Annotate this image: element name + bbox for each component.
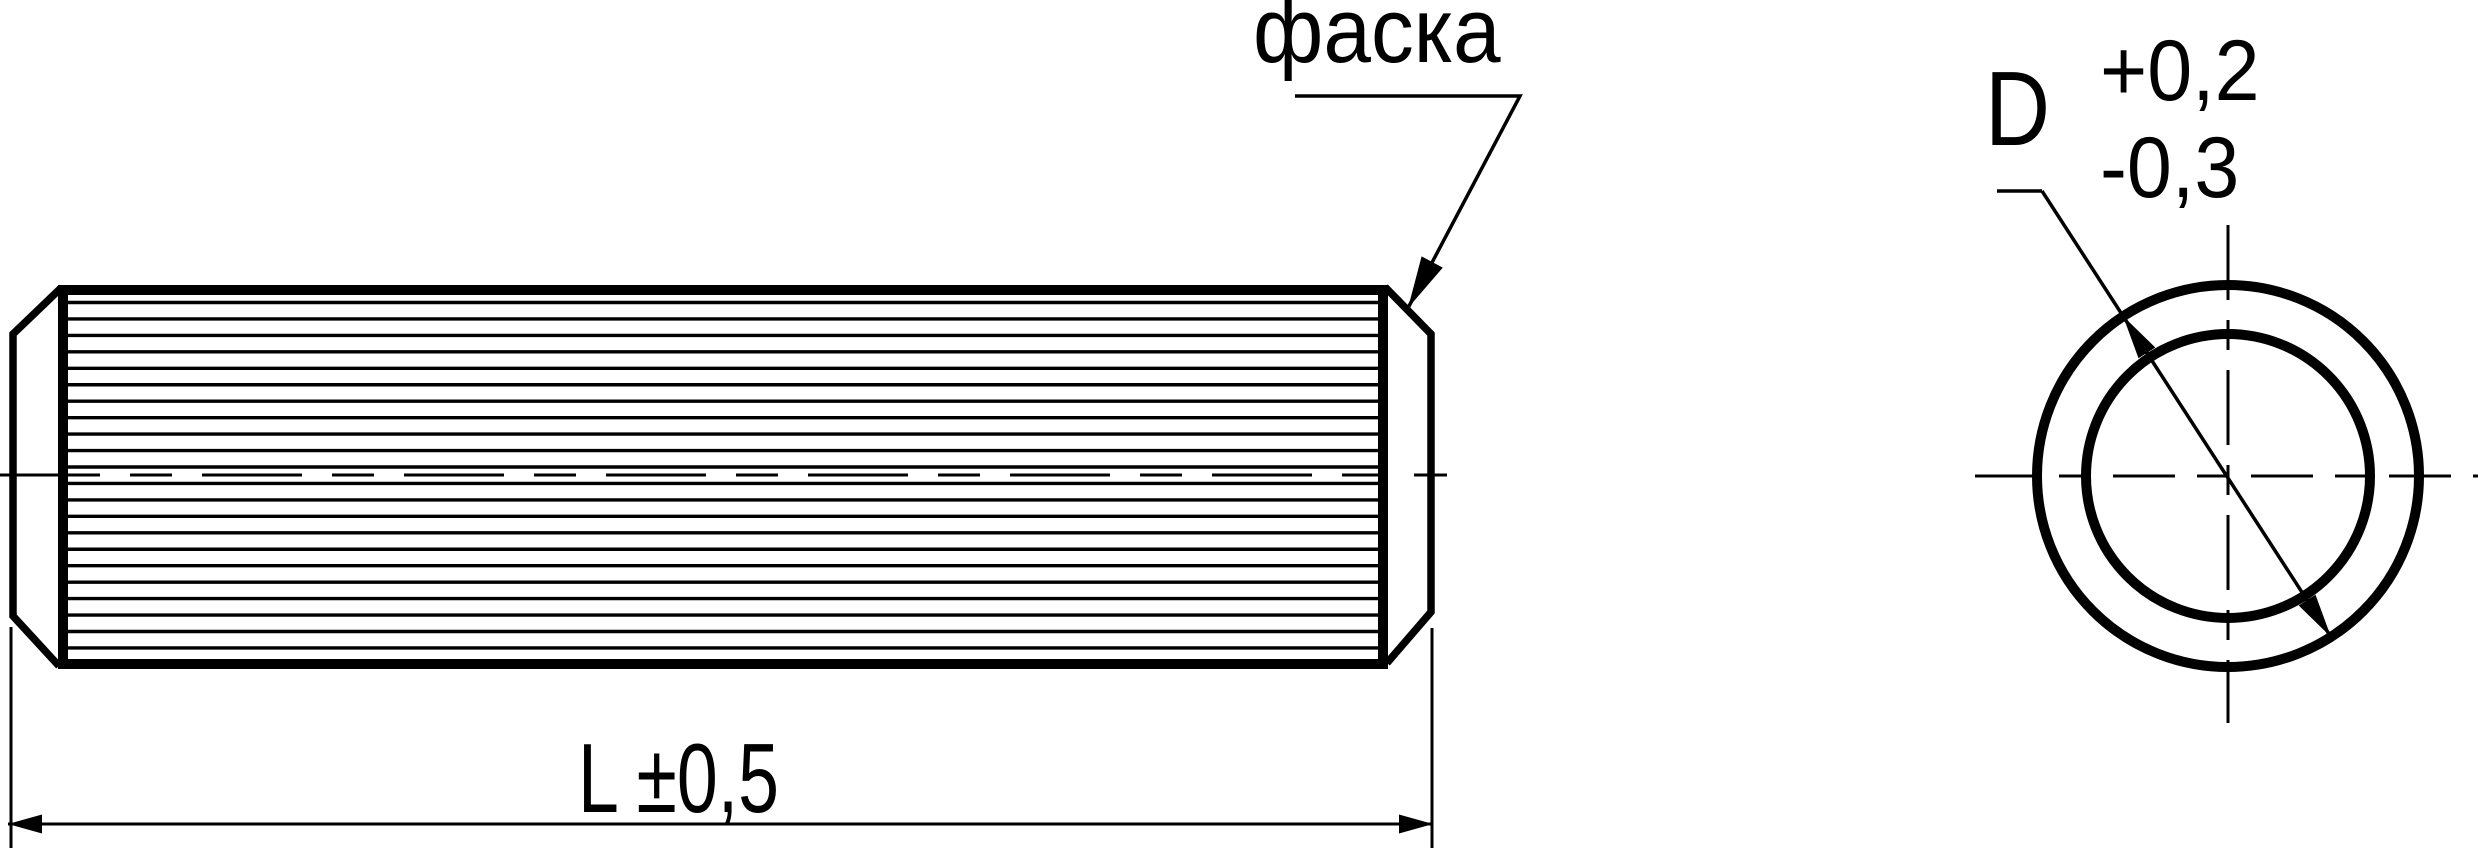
chamfer-label: фаска <box>1253 0 1501 82</box>
chamfer-leader-arrow <box>1408 256 1443 308</box>
diameter-tolerance-upper: +0,2 <box>2100 22 2260 119</box>
chamfer-leader-line <box>1295 96 1520 308</box>
diameter-tolerance-lower: -0,3 <box>2100 119 2239 216</box>
diameter-label: D <box>1985 49 2050 168</box>
diameter-dimension: D +0,2 -0,3 <box>1985 22 2331 637</box>
end-view: D +0,2 -0,3 <box>1975 22 2478 723</box>
technical-drawing-page: L ±0,5 фаска D +0,2 -0,3 <box>0 0 2478 849</box>
body-outline <box>63 290 1383 664</box>
technical-drawing-canvas: L ±0,5 фаска D +0,2 -0,3 <box>0 0 2478 849</box>
left-chamfer-outline <box>13 288 61 666</box>
side-view <box>0 287 1447 666</box>
dimension-arrow-left <box>8 815 42 834</box>
chamfer-callout: фаска <box>1253 0 1520 308</box>
dimension-arrow-right <box>1399 815 1433 834</box>
length-dimension-label: L ±0,5 <box>578 725 779 834</box>
diameter-line <box>2042 191 2331 637</box>
